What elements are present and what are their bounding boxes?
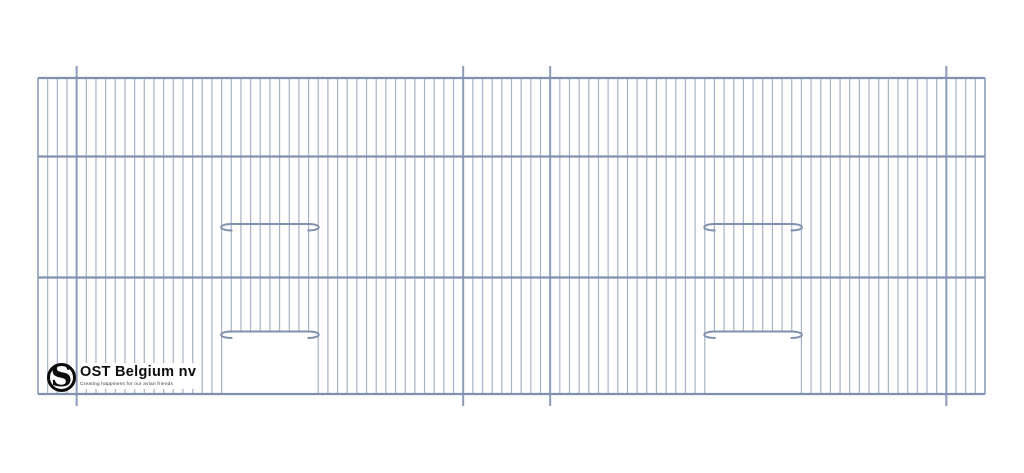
cage-front-drawing [0, 0, 1024, 473]
door-opening [223, 333, 318, 393]
logo-letter: S [51, 362, 73, 392]
door-opening [706, 333, 801, 393]
company-tagline: Creating happiness for our avian friends [80, 382, 196, 387]
logo: S OST Belgium nv Creating happiness for … [47, 363, 200, 392]
logo-text-block: OST Belgium nv Creating happiness for ou… [78, 363, 200, 389]
company-name: OST Belgium nv [80, 364, 196, 380]
ost-circle-s-logo-icon: S [47, 363, 76, 392]
cage-front-panel-screenshot: S OST Belgium nv Creating happiness for … [0, 0, 1024, 473]
